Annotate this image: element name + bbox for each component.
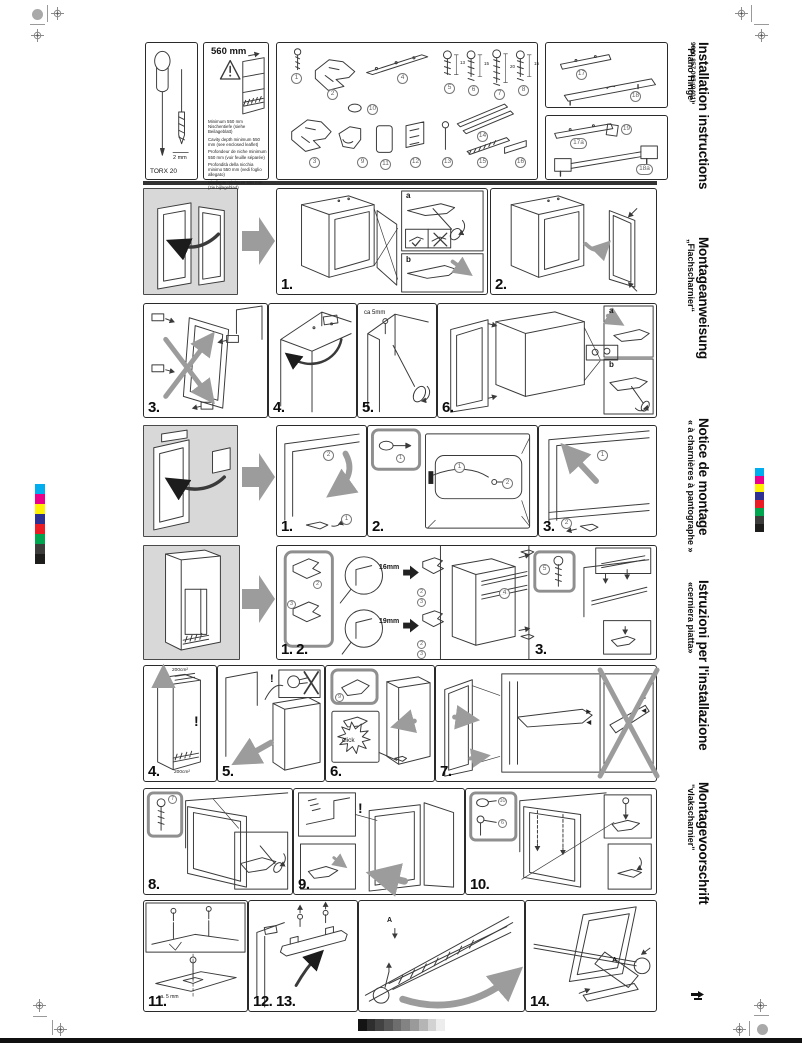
screw-5-length: 13 — [460, 61, 465, 66]
note-de: Minimum 550 mm Nischentiefe (siehe Beila… — [208, 119, 267, 135]
part-18a-label: 18a — [636, 164, 653, 175]
registration-crosshair-icon — [51, 7, 64, 20]
registration-line — [52, 1020, 53, 1035]
page-turn-icon — [691, 988, 705, 998]
step-4-label: 4. — [273, 399, 285, 416]
flow-arrow-icon — [242, 450, 276, 504]
bit-size-label: 2 mm — [173, 156, 187, 162]
dimension-A-label: A — [612, 957, 617, 964]
step-1-sketch — [277, 189, 487, 294]
subtitle-de: „Flachscharnier“ — [686, 239, 696, 359]
registration-line — [754, 24, 769, 25]
step-3-sketch — [144, 304, 267, 417]
parts-overview-panel: 1 2 3 4 5 6 7 8 9 10 11 12 13 14 15 16 1… — [276, 42, 538, 180]
registration-crosshair-icon — [33, 999, 46, 1012]
registration-crosshair-icon — [754, 999, 767, 1012]
callout-3: 3 — [417, 650, 426, 659]
color-swatch — [35, 554, 45, 564]
color-swatch — [755, 516, 764, 524]
callout-3: 3 — [287, 600, 296, 609]
color-swatch — [35, 524, 45, 534]
flow-arrow-icon — [242, 572, 276, 626]
step-14-label: 14. — [530, 993, 549, 1010]
callout-2: 2 — [323, 450, 334, 461]
callout-10: 10 — [498, 797, 507, 806]
panel-step-8: 7 8. — [143, 788, 293, 895]
handle-step-1-label: 1. — [281, 518, 293, 535]
part-12-label: 12 — [410, 157, 421, 168]
inset-b-label: b — [609, 361, 614, 369]
callout-2: 2 — [561, 518, 572, 529]
part-15-label: 15 — [477, 157, 488, 168]
registration-line — [30, 24, 45, 25]
part-13-label: 13 — [442, 157, 453, 168]
gray-swatch — [410, 1019, 419, 1031]
color-swatch — [35, 504, 45, 514]
click-sketch — [326, 666, 434, 781]
gray-swatch — [436, 1019, 445, 1031]
hinge-engage-sketch — [436, 666, 656, 781]
step-5-label: 5. — [362, 399, 374, 416]
panel-step-3: 3. — [143, 303, 268, 418]
panel-step-v4: 200cm² 200cm² ! 4. — [143, 665, 217, 782]
panel-step-10: 10 6 10. — [465, 788, 657, 895]
parts-17-18-panel: 17 18 — [545, 42, 668, 108]
callout-2: 2 — [502, 478, 513, 489]
part-7-label: 7 — [494, 89, 505, 100]
cavity-dim-label: 560 mm — [211, 47, 246, 57]
step-9-label: 9. — [298, 876, 310, 893]
callout-3: 3 — [417, 598, 426, 607]
panel-handle-step-2: 1 1 2 2. — [367, 425, 538, 537]
panel-step-2: 2. — [490, 188, 657, 295]
part-16-label: 16 — [515, 157, 526, 168]
part-14-label: 14 — [477, 131, 488, 142]
color-swatch — [755, 500, 764, 508]
callout-7: 7 — [168, 795, 177, 804]
handle-intro-sketch — [144, 426, 237, 536]
gray-swatch — [428, 1019, 437, 1031]
step-v5-label: 5. — [222, 763, 234, 780]
step-9-sketch — [294, 789, 464, 894]
title-fr: Notice de montage — [696, 418, 711, 553]
title-block-fr: Notice de montage « à charnières à panto… — [686, 418, 711, 553]
color-calibration-bar — [755, 468, 764, 532]
registration-dot-icon — [32, 9, 43, 20]
bottom-rule — [0, 1038, 802, 1043]
gray-swatch — [375, 1019, 384, 1031]
niche-steps-sketch — [277, 546, 656, 659]
part-5-label: 5 — [444, 83, 455, 94]
color-swatch — [35, 544, 45, 554]
part-8-label: 8 — [518, 85, 529, 96]
color-swatch — [35, 514, 45, 524]
color-swatch — [755, 468, 764, 476]
title-block-de: Montageanweisung „Flachscharnier“ — [686, 237, 711, 359]
title-block-nl: Montagevoorschrift "vlakscharnier" — [686, 782, 711, 904]
color-swatch — [755, 508, 764, 516]
part-1-label: 1 — [291, 73, 302, 84]
panel-step-14: A 14. — [525, 900, 657, 1012]
panel-step-5: ca 5mm 5. — [357, 303, 437, 418]
torx-label: TORX 20 — [150, 169, 177, 176]
part-11-label: 11 — [380, 159, 391, 170]
step-2-sketch — [491, 189, 656, 294]
color-calibration-bar — [35, 484, 45, 564]
part-17a-label: 17a — [570, 138, 587, 149]
gray-swatch — [419, 1019, 428, 1031]
title-it: Istruzioni per l'installazione — [696, 580, 711, 751]
handle-step-3-label: 3. — [543, 518, 555, 535]
flow-arrow-icon — [242, 214, 276, 268]
step-6-label: 6. — [442, 399, 454, 416]
depth-19mm-label: 19mm — [379, 618, 399, 625]
part-10-label: 10 — [367, 104, 378, 115]
step-2-label: 2. — [495, 276, 507, 293]
registration-line — [33, 1016, 47, 1017]
vent-area-label: 200cm² — [174, 771, 190, 776]
title-block-en: Installation instructions "Piano Hinge" — [686, 42, 711, 189]
toolbox-panel: 2 mm TORX 20 — [145, 42, 198, 180]
step-12-13-label: 12. 13. — [253, 993, 295, 1010]
inset-a-label: a — [609, 307, 613, 315]
panel-step-12-13: 12. 13. — [248, 900, 358, 1012]
callout-1: 1 — [341, 514, 352, 525]
handle-step-3-sketch — [539, 426, 656, 536]
click-label: click — [342, 738, 355, 745]
callout-9: 9 — [335, 693, 344, 702]
step-v6-label: 6. — [330, 763, 342, 780]
color-swatch — [755, 492, 764, 500]
attention-mark: ! — [194, 714, 199, 728]
niche-step-3-label: 3. — [535, 641, 547, 658]
inset-a-label: a — [406, 192, 410, 200]
panel-seal-rail: A — [358, 900, 525, 1012]
gray-swatch — [367, 1019, 376, 1031]
callout-1: 1 — [597, 450, 608, 461]
note-fr: Profondeur de niche minimum 550 mm (voir… — [208, 149, 267, 159]
part-19-label: 19 — [621, 124, 632, 135]
title-nl: Montagevoorschrift — [696, 782, 711, 904]
part-3-label: 3 — [309, 157, 320, 168]
panel-step-9: ! 9. — [293, 788, 465, 895]
intro-sketch-handle — [143, 425, 238, 537]
note-nl: Nisdiepte minimum 550 mm (zie bijlagebla… — [208, 180, 267, 190]
screw-8-length: 15 — [534, 62, 539, 67]
panel-step-11: ca. 5 mm 11. — [143, 900, 248, 1012]
callout-2: 2 — [417, 640, 426, 649]
attention-mark: ! — [358, 801, 363, 815]
grayscale-calibration-bar — [358, 1019, 445, 1031]
panel-niche-steps: 2 3 2 3 2 3 4 5 16mm 19mm 1. 2. 3. — [276, 545, 657, 660]
callout-1: 1 — [454, 462, 465, 473]
niche-step-12-label: 1. 2. — [281, 641, 308, 658]
part-9-label: 9 — [357, 157, 368, 168]
part-18-label: 18 — [630, 91, 641, 102]
color-swatch — [35, 494, 45, 504]
registration-crosshair-icon — [755, 29, 768, 42]
cavity-notes: Minimum 550 mm Nischentiefe (siehe Beila… — [208, 119, 267, 192]
color-swatch — [755, 524, 764, 532]
callout-5: 5 — [539, 564, 550, 575]
registration-crosshair-icon — [733, 1023, 746, 1036]
step-3-label: 3. — [148, 399, 160, 416]
color-swatch — [755, 476, 764, 484]
door-swap-sketch — [144, 189, 237, 294]
step-8-label: 8. — [148, 876, 160, 893]
part-6-label: 6 — [468, 85, 479, 96]
registration-crosshair-icon — [54, 1023, 67, 1036]
step-1-label: 1. — [281, 276, 293, 293]
subtitle-en: "Piano Hinge" — [686, 44, 696, 189]
gap-dim-label: ca 5mm — [364, 310, 385, 316]
registration-line — [751, 5, 752, 22]
registration-line — [47, 5, 48, 22]
parts-17a-19-18a-panel: 17a 19 18a — [545, 115, 668, 180]
panel-step-6: a b 6. — [437, 303, 657, 418]
intro-sketch-door-swap — [143, 188, 238, 295]
title-block-it: Istruzioni per l'installazione «cerniera… — [686, 580, 711, 751]
note-it: Profondità della nicchia minimo 550 mm (… — [208, 162, 267, 178]
step-8-sketch — [144, 789, 292, 894]
step-v7-label: 7. — [440, 763, 452, 780]
registration-crosshair-icon — [31, 29, 44, 42]
registration-dot-icon — [757, 1024, 768, 1035]
screw-7-length: 20 — [510, 65, 515, 70]
step-6-sketch — [438, 304, 656, 417]
step-v4-label: 4. — [148, 763, 160, 780]
gray-swatch — [384, 1019, 393, 1031]
intro-sketch-niche — [143, 545, 240, 660]
gray-swatch — [393, 1019, 402, 1031]
callout-2: 2 — [313, 580, 322, 589]
callout-6: 6 — [498, 819, 507, 828]
registration-line — [754, 1015, 769, 1016]
cavity-depth-panel: 560 mm Minimum 550 mm Nischentiefe (sieh… — [203, 42, 269, 180]
panel-handle-step-3: 1 2 3. — [538, 425, 657, 537]
inset-b-label: b — [406, 256, 411, 264]
seal-rail-sketch — [359, 901, 524, 1011]
title-en: Installation instructions — [696, 42, 711, 189]
callout-1: 1 — [396, 454, 405, 463]
parts-17-18-sketch — [546, 43, 667, 107]
color-swatch — [35, 534, 45, 544]
registration-crosshair-icon — [735, 7, 748, 20]
color-swatch — [35, 484, 45, 494]
panel-step-v5: ! 5. — [217, 665, 325, 782]
registration-line — [749, 1021, 750, 1036]
note-en: Cavity depth minimum 550 mm (see enclose… — [208, 137, 267, 147]
part-17-label: 17 — [576, 69, 587, 80]
screw-6-length: 15 — [484, 62, 489, 67]
gray-swatch — [401, 1019, 410, 1031]
subtitle-it: «cerniera piatta» — [686, 582, 696, 751]
subtitle-nl: "vlakscharnier" — [686, 784, 696, 904]
panel-step-v6: 9 click 6. — [325, 665, 435, 782]
manual-page: 9000 857 005 (9401) Installation instruc… — [0, 0, 802, 1044]
attention-mark: ! — [270, 674, 274, 685]
panel-handle-step-1: 2 1 1. — [276, 425, 367, 537]
panel-step-4: 4. — [268, 303, 357, 418]
color-swatch — [755, 484, 764, 492]
part-2-label: 2 — [327, 89, 338, 100]
niche-intro-sketch — [144, 546, 239, 659]
step-11-label: 11. — [148, 993, 167, 1010]
screwdriver-icon — [146, 43, 197, 179]
callout-2: 2 — [417, 588, 426, 597]
dimension-A-label: A — [387, 917, 392, 924]
callout-4: 4 — [499, 588, 510, 599]
depth-16mm-label: 16mm — [379, 564, 399, 571]
step-10-label: 10. — [470, 876, 489, 893]
gray-swatch — [358, 1019, 367, 1031]
handle-step-2-label: 2. — [372, 518, 384, 535]
panel-step-v7: 7. — [435, 665, 657, 782]
step-10-sketch — [466, 789, 656, 894]
panel-step-1: a b 1. — [276, 188, 488, 295]
part-4-label: 4 — [397, 73, 408, 84]
subtitle-fr: « à charnières à pantographe » — [686, 420, 696, 553]
title-de: Montageanweisung — [696, 237, 711, 359]
vent-area-label: 200cm² — [172, 669, 188, 674]
